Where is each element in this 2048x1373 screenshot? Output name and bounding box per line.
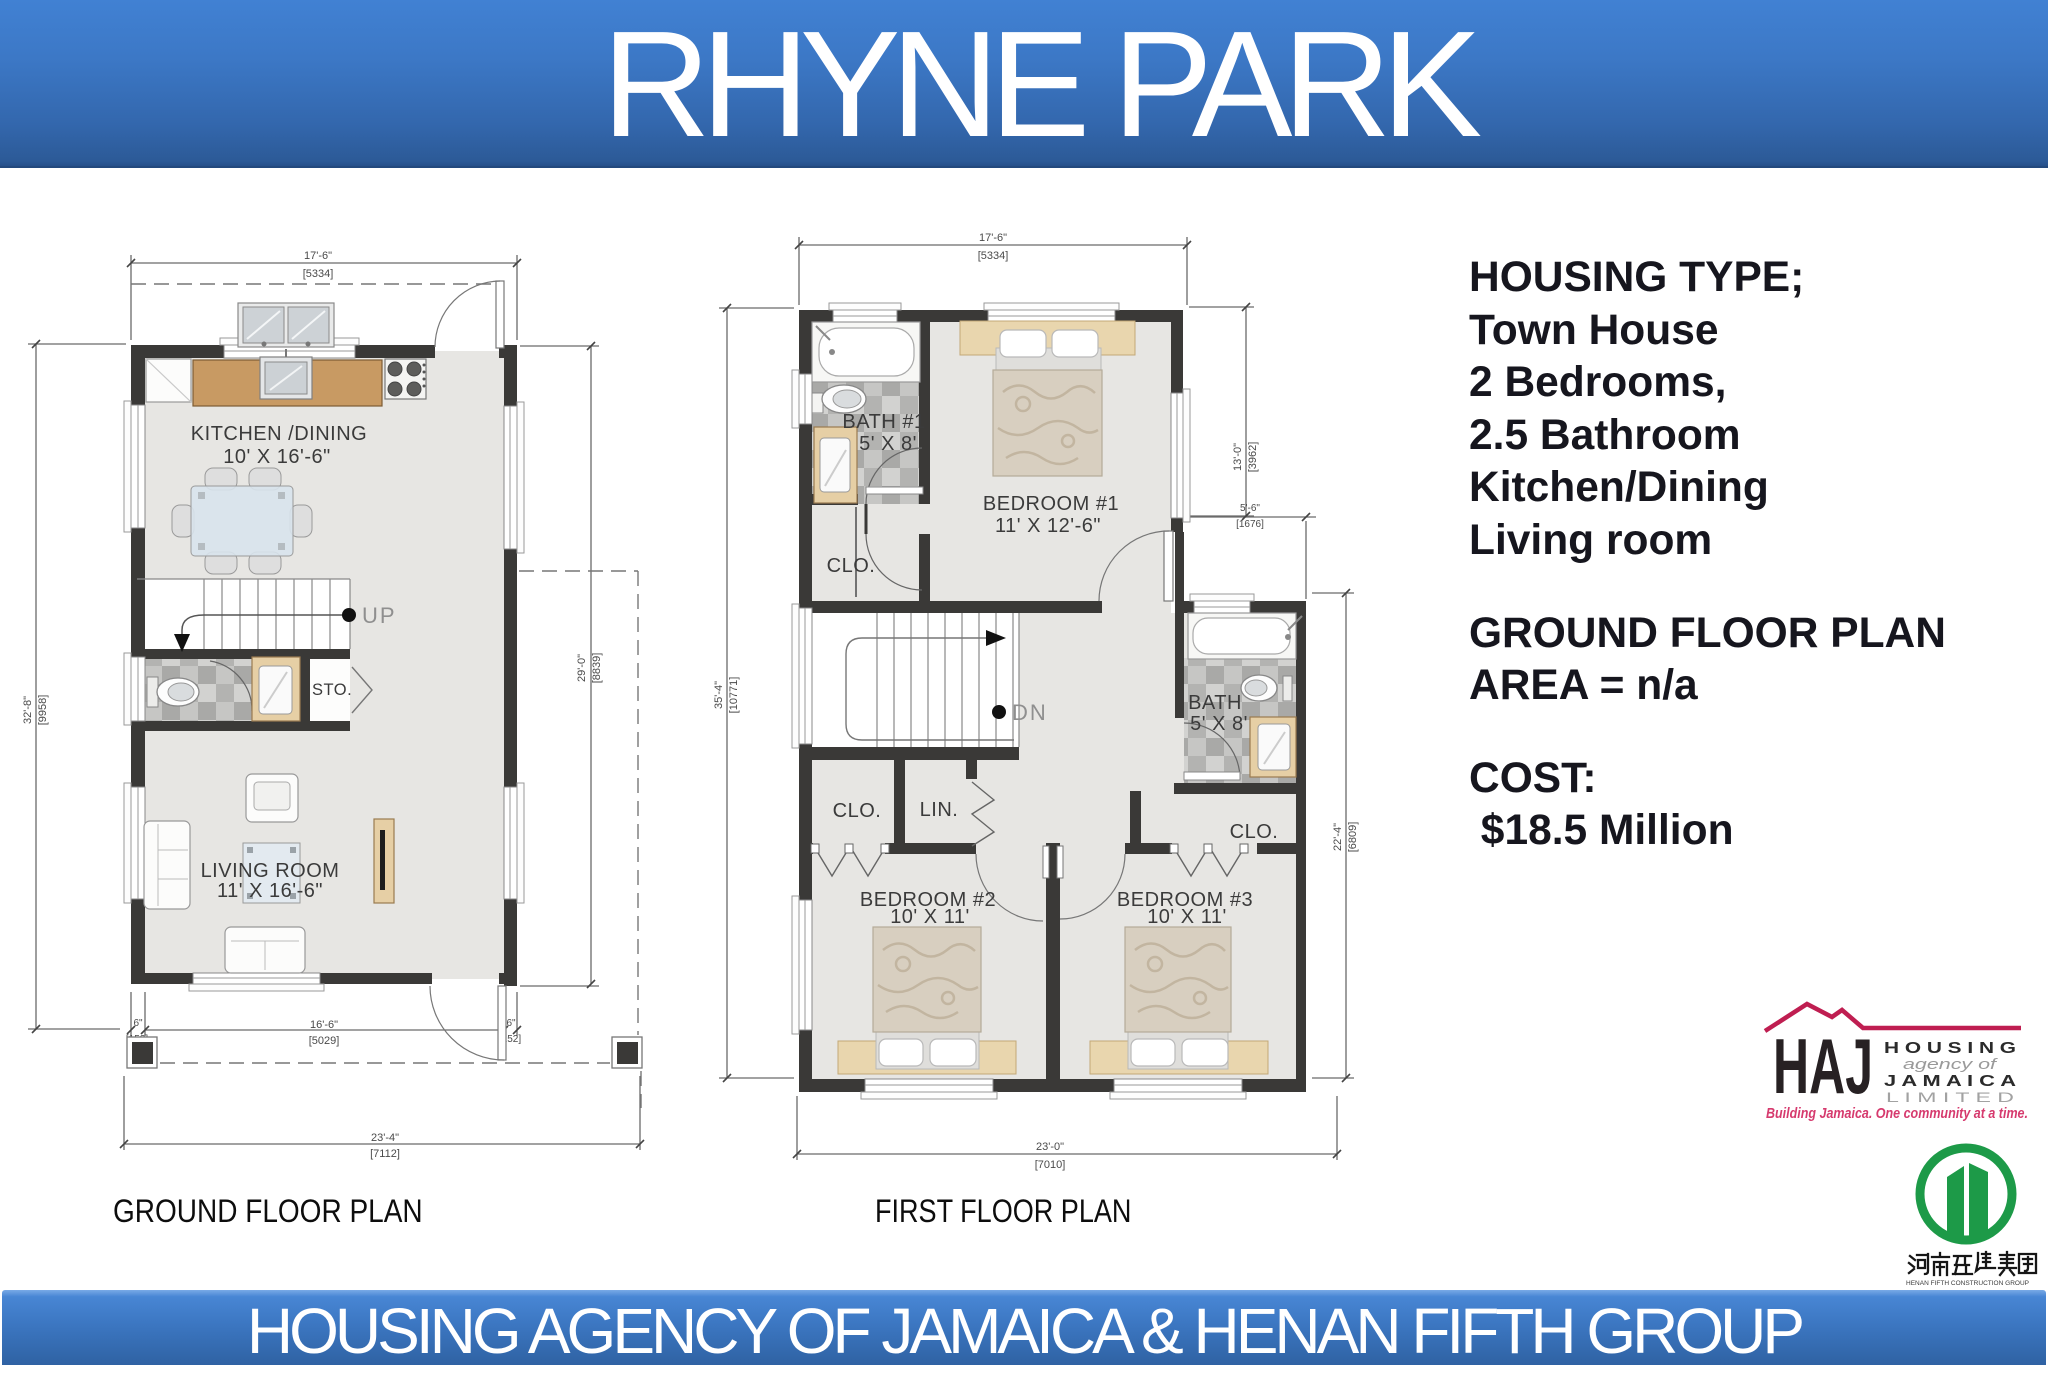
svg-text:17'-6": 17'-6" [304,250,332,262]
svg-text:11' X 16'-6": 11' X 16'-6" [217,880,323,902]
svg-text:J A M A I C A: J A M A I C A [1884,1073,2017,1090]
svg-text:CLO.: CLO. [1230,821,1279,843]
svg-text:UP: UP [362,603,397,628]
svg-text:16'-6": 16'-6" [310,1019,338,1031]
svg-text:[5334]: [5334] [303,268,334,280]
svg-text:10' X 11': 10' X 11' [1147,906,1227,928]
svg-text:32'-8": 32'-8" [22,696,34,724]
svg-text:BEDROOM #1: BEDROOM #1 [983,493,1119,515]
svg-text:5' X 8': 5' X 8' [1190,713,1248,735]
svg-text:22'-4": 22'-4" [1332,823,1344,851]
svg-text:29'-0": 29'-0" [576,654,588,682]
svg-text:CLO.: CLO. [833,800,882,822]
svg-text:L I M I T E D: L I M I T E D [1886,1089,2014,1105]
svg-text:23'-4": 23'-4" [371,1132,399,1144]
svg-text:[3962]: [3962] [1247,442,1259,473]
svg-text:10' X 11': 10' X 11' [890,906,970,928]
svg-text:[10771]: [10771] [728,677,740,714]
svg-text:H O U S I N G: H O U S I N G [1884,1040,2016,1057]
svg-text:[7010]: [7010] [1035,1159,1066,1171]
svg-text:17'-6": 17'-6" [979,232,1007,244]
svg-text:[1676]: [1676] [1236,519,1264,530]
svg-text:13'-0": 13'-0" [1232,443,1244,471]
svg-text:CLO.: CLO. [827,555,876,577]
svg-text:[5334]: [5334] [978,250,1009,262]
svg-text:23'-0": 23'-0" [1036,1141,1064,1153]
svg-text:[8839]: [8839] [591,653,603,684]
svg-text:6": 6" [506,1018,516,1029]
svg-text:DN: DN [1012,700,1048,725]
svg-text:HENAN FIFTH CONSTRUCTION GROUP: HENAN FIFTH CONSTRUCTION GROUP [1906,1280,2029,1287]
svg-text:6": 6" [133,1018,143,1029]
svg-text:35'-4": 35'-4" [713,681,725,709]
svg-text:HAJ: HAJ [1773,1022,1873,1110]
svg-text:[7112]: [7112] [370,1148,400,1160]
svg-text:Building Jamaica. One communit: Building Jamaica. One community at a tim… [1766,1106,2028,1122]
svg-text:[5029]: [5029] [309,1035,340,1047]
svg-text:BATH: BATH [1188,692,1242,714]
svg-text:11' X 12'-6": 11' X 12'-6" [995,515,1101,537]
svg-text:10' X 16'-6": 10' X 16'-6" [223,446,330,468]
svg-text:KITCHEN /DINING: KITCHEN /DINING [191,423,367,445]
svg-text:agency of: agency of [1903,1056,1999,1073]
svg-text:LIVING ROOM: LIVING ROOM [201,860,340,882]
svg-text:[6809]: [6809] [1347,822,1359,853]
svg-text:[9958]: [9958] [37,695,49,726]
svg-text:STO.: STO. [312,681,352,699]
svg-text:LIN.: LIN. [920,799,959,821]
svg-text:BATH #1: BATH #1 [842,411,925,433]
svg-text:5' X 8': 5' X 8' [859,433,917,455]
svg-text:5'-6": 5'-6" [1240,503,1260,514]
